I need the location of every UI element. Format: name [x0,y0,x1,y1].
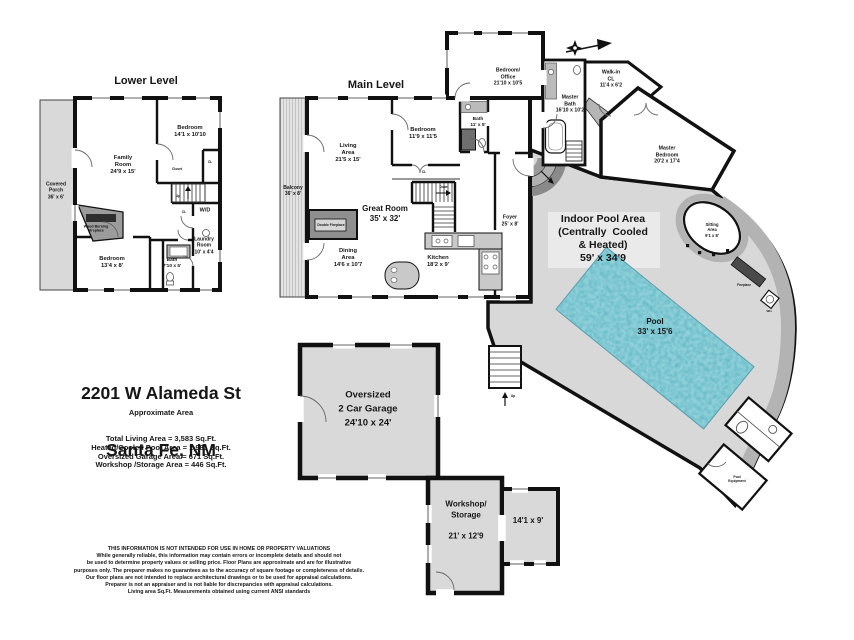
indoor-pool-area [488,150,795,510]
floorplan-drawing [0,0,854,640]
workshop-storage [428,478,502,593]
floorplan-page: Lower Level Main Level Covered Porch 36'… [0,0,854,640]
entry-stairs [489,346,521,406]
storage-room [502,489,558,564]
north-arrow-icon [566,39,612,56]
balcony [280,98,307,297]
double-fireplace [309,210,357,239]
master-suite [580,62,734,190]
stairs-lower [172,184,205,202]
garage [300,345,438,478]
bedroom-office [447,33,543,98]
covered-porch [40,100,75,290]
hall-steps [566,141,582,161]
master-bedroom [601,88,734,190]
lower-level-plan [40,95,224,294]
